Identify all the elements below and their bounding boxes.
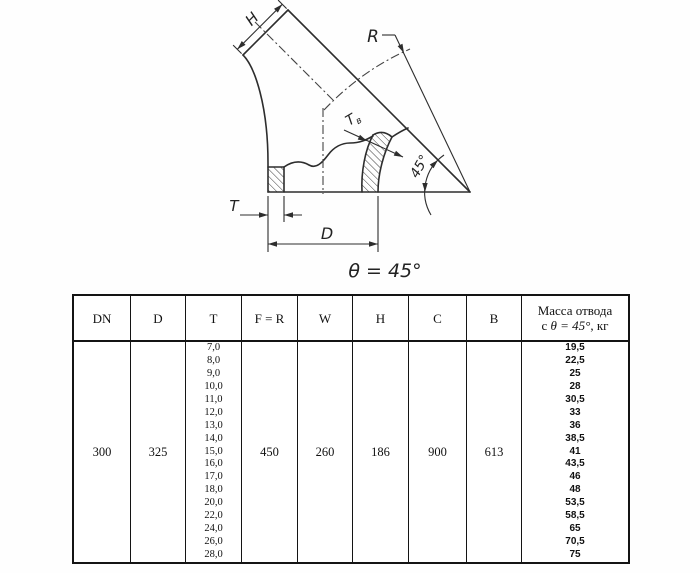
table-cell-value: 33 [569, 407, 580, 420]
table-cell-value: 70,5 [565, 536, 584, 549]
table-cell-value: 75 [569, 549, 580, 562]
col-header-t: T [186, 296, 242, 342]
value-c: 900 [428, 445, 447, 460]
col-header-label: H [376, 311, 385, 326]
bend-wall-section [362, 132, 392, 192]
mass-header-pre: с [541, 318, 550, 333]
mass-header-post: , кг [590, 318, 608, 333]
table-cell-value: 36 [569, 420, 580, 433]
value-w: 260 [316, 445, 335, 460]
col-header-mass: Масса отвода с θ = 45°, кг [522, 296, 628, 342]
table-cell-value: 19,5 [565, 342, 584, 355]
cell-c: 900 [409, 342, 467, 562]
table-cell-value: 15,0 [204, 446, 222, 459]
col-header-label: B [490, 311, 499, 326]
table-cell-value: 9,0 [207, 368, 220, 381]
dim-label-Tb: Tв [343, 109, 364, 132]
col-header-d: D [131, 296, 186, 342]
mass-header-line2: с θ = 45°, кг [541, 318, 608, 333]
table-cell-value: 22,0 [204, 510, 222, 523]
col-header-dn: DN [74, 296, 131, 342]
table-cell-value: 20,0 [204, 497, 222, 510]
table-cell-value: 24,0 [204, 523, 222, 536]
cell-h: 186 [353, 342, 409, 562]
dim-label-T: T [229, 197, 240, 215]
table-cell-value: 10,0 [204, 381, 222, 394]
theta-caption: θ = 45° [348, 260, 421, 282]
table-cell-value: 30,5 [565, 394, 584, 407]
cell-d: 325 [131, 342, 186, 562]
cell-t-values: 7,08,09,010,011,012,013,014,015,016,017,… [186, 342, 242, 562]
mass-header-math: θ = 45° [551, 318, 591, 333]
table-cell-value: 46 [569, 471, 580, 484]
mass-header-line1: Масса отвода [538, 303, 613, 318]
table-cell-value: 28,0 [204, 549, 222, 562]
col-header-c: C [409, 296, 467, 342]
dim-label-D: D [321, 224, 333, 243]
col-header-label: T [210, 311, 218, 326]
col-header-b: B [467, 296, 522, 342]
table-cell-value: 43,5 [565, 458, 584, 471]
table-cell-value: 12,0 [204, 407, 222, 420]
col-header-label: D [153, 311, 162, 326]
col-header-h: H [353, 296, 409, 342]
col-header-label: C [433, 311, 442, 326]
value-d: 325 [149, 445, 168, 460]
value-h: 186 [371, 445, 390, 460]
table-cell-value: 14,0 [204, 433, 222, 446]
table-cell-value: 17,0 [204, 471, 222, 484]
col-header-label: W [319, 311, 331, 326]
table-cell-value: 11,0 [205, 394, 223, 407]
dim-label-45deg: 45° [407, 152, 433, 181]
table-cell-value: 16,0 [204, 458, 222, 471]
table-cell-value: 58,5 [565, 510, 584, 523]
elbow-outline [243, 10, 470, 192]
table-cell-value: 41 [569, 446, 580, 459]
table-cell-value: 53,5 [565, 497, 584, 510]
cell-b: 613 [467, 342, 522, 562]
axis-centerline [255, 22, 333, 100]
dim-label-R: R [367, 27, 379, 47]
table-cell-value: 22,5 [565, 355, 584, 368]
table-cell-value: 13,0 [204, 420, 222, 433]
table-cell-value: 48 [569, 484, 580, 497]
value-b: 613 [485, 445, 504, 460]
cell-dn: 300 [74, 342, 131, 562]
cell-fr: 450 [242, 342, 298, 562]
value-fr: 450 [260, 445, 279, 460]
table-cell-value: 18,0 [204, 484, 222, 497]
table-cell-value: 25 [569, 368, 580, 381]
value-dn: 300 [93, 445, 112, 460]
col-header-label: DN [93, 311, 112, 326]
table-cell-value: 38,5 [565, 433, 584, 446]
table-cell-value: 7,0 [207, 342, 220, 355]
col-header-label: F = R [255, 311, 285, 326]
table-cell-value: 8,0 [207, 355, 220, 368]
elbow-dimensions-table: DN D T F = R W H C B Масса отвода с θ = … [72, 294, 630, 564]
elbow-45-diagram: H R Tв 45° T D θ = 45° [0, 0, 700, 292]
table-cell-value: 28 [569, 381, 580, 394]
cell-w: 260 [298, 342, 353, 562]
cell-mass-values: 19,522,5252830,5333638,54143,5464853,558… [522, 342, 628, 562]
col-header-w: W [298, 296, 353, 342]
col-header-fr: F = R [242, 296, 298, 342]
catalog-page: H R Tв 45° T D θ = 45° DN D T F = R W H … [0, 0, 700, 573]
left-wall-section [268, 167, 284, 192]
table-cell-value: 65 [569, 523, 580, 536]
table-cell-value: 26,0 [204, 536, 222, 549]
